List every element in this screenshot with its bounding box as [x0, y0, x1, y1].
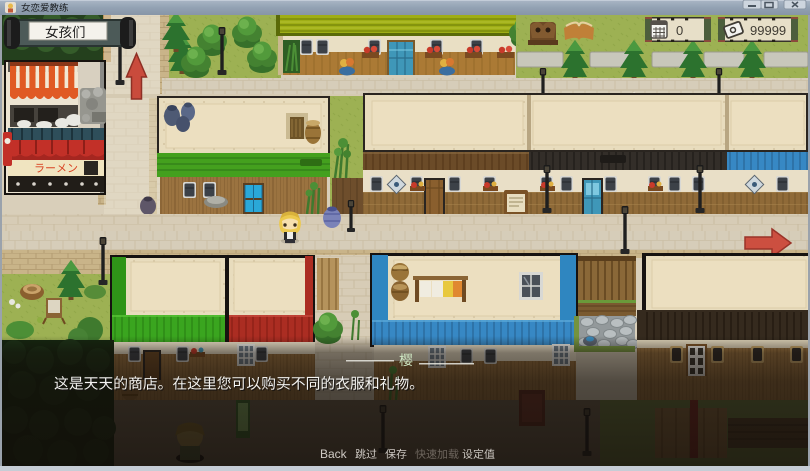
svg-text:99999: 99999	[750, 23, 786, 38]
svg-text:Back: Back	[320, 447, 348, 461]
svg-text:0: 0	[676, 23, 683, 38]
